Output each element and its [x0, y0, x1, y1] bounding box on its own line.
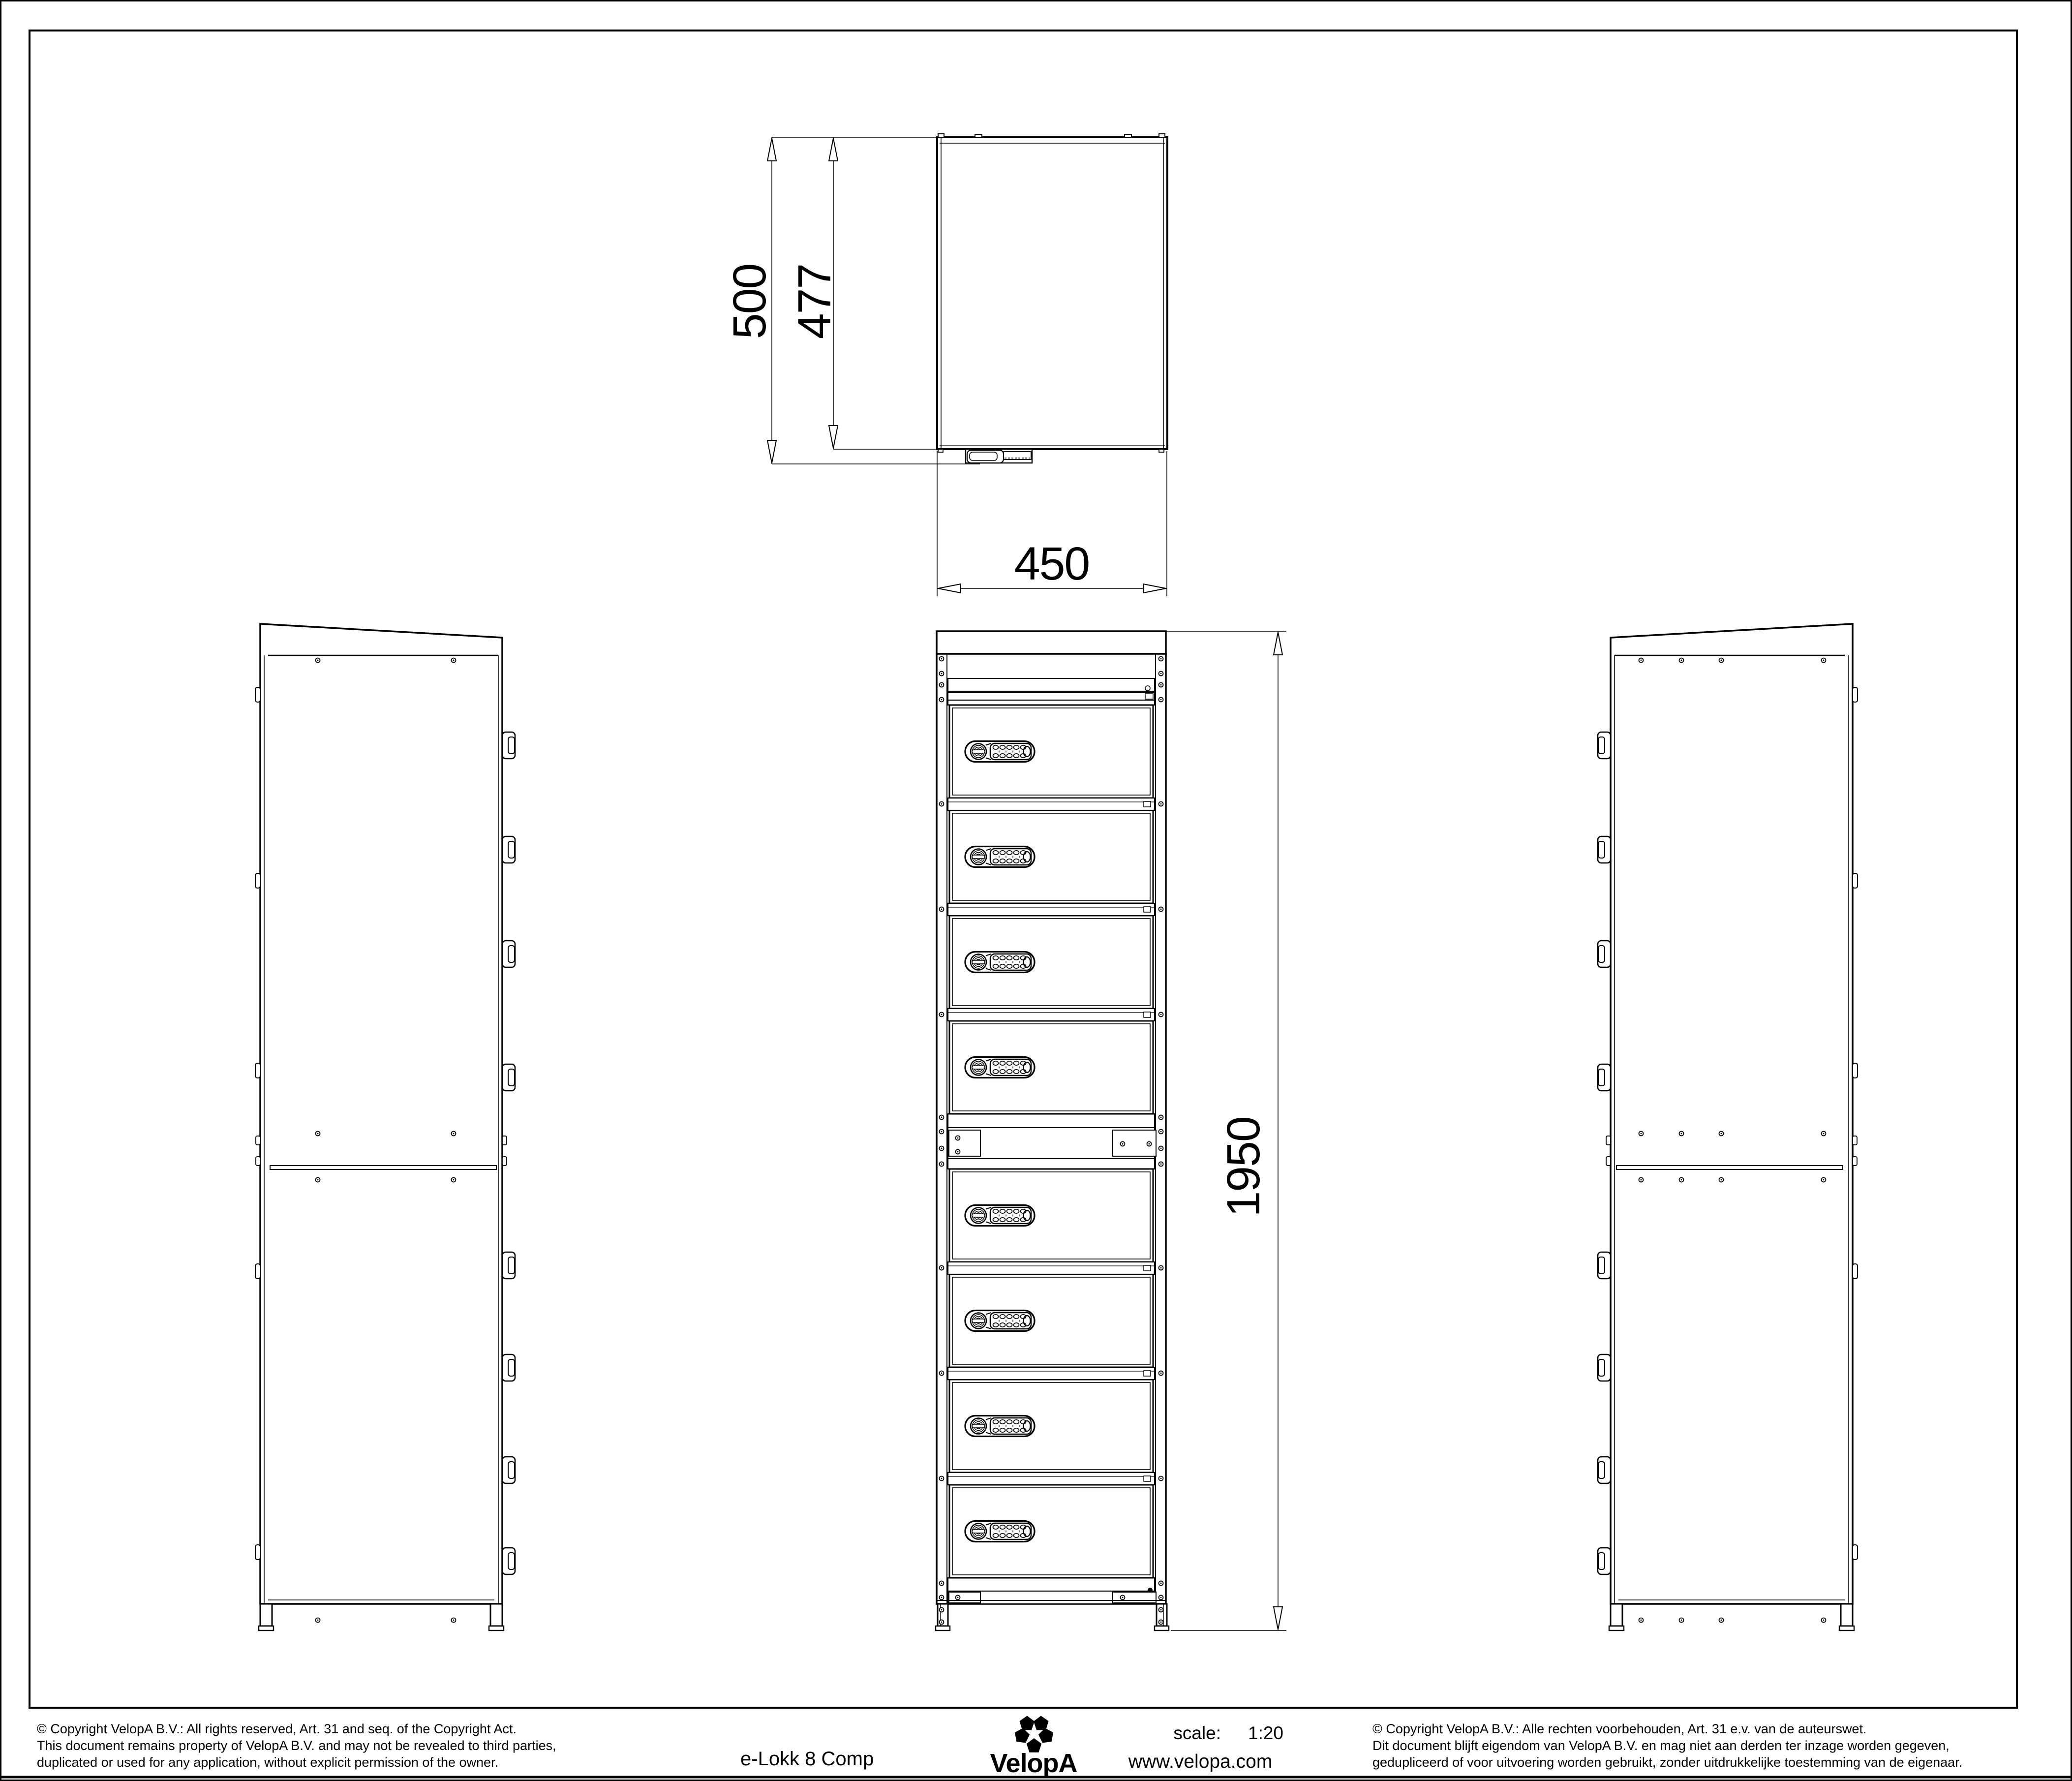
rivet-hole — [1160, 1014, 1162, 1015]
arrowhead-icon — [767, 440, 776, 463]
copyright-nl-line3: gedupliceerd of voor uitvoering worden g… — [1372, 1755, 1962, 1770]
rivet-hole — [1160, 1131, 1162, 1133]
side-view-left — [255, 624, 515, 1630]
hinge-nub — [1853, 1545, 1858, 1560]
front-junction-rail — [948, 1114, 1156, 1169]
rivet-hole — [941, 1609, 943, 1611]
rivet-hole — [1160, 1622, 1162, 1623]
rivet-hole — [1160, 1164, 1162, 1165]
front-top-slot — [948, 678, 1155, 705]
rivet-hole — [1721, 1620, 1722, 1621]
door-rail — [940, 903, 1163, 916]
rivet-hole — [941, 1478, 943, 1479]
rivet-hole — [453, 1179, 455, 1181]
side-view-right — [1598, 624, 1858, 1630]
rivet-hole — [957, 1597, 959, 1598]
logo-petal — [1020, 1716, 1035, 1730]
hinge-nub — [255, 1264, 260, 1279]
side-panel — [260, 624, 502, 1604]
copyright-en-line1: © Copyright VelopA B.V.: All rights rese… — [37, 1721, 517, 1736]
rivet-hole — [941, 1148, 943, 1149]
rivet-hole — [453, 660, 455, 661]
rivet-hole — [1681, 1620, 1682, 1621]
rivet-hole — [1160, 1583, 1162, 1584]
dimension-width-450: 450 — [937, 451, 1167, 596]
unit-seam — [1616, 1166, 1843, 1169]
key-slot — [972, 1424, 985, 1428]
keypad-lock-icon — [965, 1205, 1035, 1226]
hinge-nub — [255, 873, 260, 888]
rivet-hole — [1160, 803, 1162, 805]
rivet-hole — [1641, 1620, 1642, 1621]
hinge-nub — [255, 687, 260, 702]
hinge-mark — [1159, 134, 1165, 137]
joint-nub — [502, 1136, 507, 1145]
joint-nub — [1606, 1157, 1611, 1166]
hinge-nub — [1853, 873, 1858, 888]
side-foot-back — [1841, 1604, 1853, 1626]
drawing-title: e-Lokk 8 Comp — [740, 1748, 874, 1770]
rivet-hole — [1721, 660, 1722, 661]
joint-nub — [1606, 1136, 1611, 1145]
velopa-logo-icon — [1015, 1716, 1053, 1752]
side-foot-back — [259, 1626, 274, 1630]
dim-label-height: 1950 — [1218, 1117, 1270, 1217]
rivet-hole — [1160, 909, 1162, 910]
copyright-english: © Copyright VelopA B.V.: All rights rese… — [37, 1721, 556, 1770]
rivet-hole — [941, 699, 943, 701]
unit-seam — [270, 1166, 496, 1169]
joint-nub — [1853, 1157, 1857, 1166]
rivet-hole — [941, 803, 943, 805]
joint-nub — [256, 1157, 260, 1166]
logo-petal — [1038, 1728, 1053, 1743]
rivet-hole — [317, 1133, 319, 1135]
key-slot — [972, 960, 985, 964]
copyright-nl-line2: Dit document blijft eigendom van VelopA … — [1372, 1738, 1950, 1753]
arrowhead-icon — [767, 138, 776, 161]
rivet-hole — [1681, 1179, 1682, 1181]
front-bottom-rail — [937, 1578, 1166, 1604]
bolt-plate — [949, 1592, 980, 1603]
door-rail — [940, 1473, 1163, 1485]
hinge-nub — [255, 1545, 260, 1560]
rivet-hole — [317, 1620, 319, 1621]
rivet-hole — [1721, 1133, 1722, 1135]
rivet-hole — [941, 1117, 943, 1118]
rivet-hole — [941, 1131, 943, 1133]
hinge-nub — [1853, 687, 1858, 702]
dimension-height-1950: 1950 — [1166, 631, 1286, 1630]
rivet-hole — [1160, 658, 1162, 660]
hinge-nub — [1853, 1264, 1858, 1279]
rivet-hole — [317, 660, 319, 661]
key-slot — [972, 1319, 985, 1322]
copyright-nl-line1: © Copyright VelopA B.V.: Alle rechten vo… — [1372, 1721, 1867, 1736]
rivet-hole — [1160, 684, 1162, 686]
side-foot-back — [1839, 1626, 1854, 1630]
rivet-hole — [1160, 1117, 1162, 1118]
copyright-en-line2: This document remains property of VelopA… — [37, 1738, 556, 1753]
rivet-hole — [1122, 1597, 1124, 1598]
rivet-hole — [941, 658, 943, 660]
website-link[interactable]: www.velopa.com — [1128, 1751, 1273, 1772]
rivet-hole — [1681, 660, 1682, 661]
logo-petal — [1015, 1728, 1030, 1743]
rivet-hole — [941, 1014, 943, 1015]
side-foot-back — [260, 1604, 272, 1626]
keypad-lock-icon — [965, 952, 1035, 973]
rivet-hole — [1160, 699, 1162, 701]
rivet-hole — [1641, 660, 1642, 661]
rivet-hole — [1641, 1133, 1642, 1135]
rivet-hole — [1721, 1179, 1722, 1181]
rivet-hole — [1160, 673, 1162, 675]
rivet-hole — [941, 1373, 943, 1374]
rivet-hole — [1823, 1179, 1825, 1181]
key-slot — [972, 855, 985, 859]
drawing-sheet: 500 477 450 — [0, 0, 2072, 1781]
joint-nub — [1853, 1136, 1857, 1145]
side-foot-front — [490, 1604, 502, 1626]
joint-nub — [502, 1157, 507, 1166]
rivet-hole — [1160, 1373, 1162, 1374]
rivet-hole — [1823, 1133, 1825, 1135]
copyright-en-line3: duplicated or used for any application, … — [37, 1755, 498, 1770]
rivet-hole — [1681, 1133, 1682, 1135]
arrowhead-icon — [1274, 632, 1282, 655]
rivet-hole — [941, 1267, 943, 1269]
keypad-lock-icon — [965, 1311, 1035, 1331]
door-rail — [940, 1367, 1163, 1380]
top-view-latch — [966, 449, 1032, 463]
hinge-mark — [938, 134, 944, 137]
technical-drawing-canvas: 500 477 450 — [0, 0, 2072, 1781]
keypad-lock-icon — [965, 1057, 1035, 1078]
top-view-body — [937, 137, 1167, 449]
scale-value: 1:20 — [1248, 1723, 1283, 1743]
side-foot-front — [1611, 1604, 1622, 1626]
rivet-hole — [957, 1137, 959, 1139]
key-slot — [972, 750, 985, 753]
keypad-lock-icon — [965, 741, 1035, 762]
rivet-hole — [1160, 1148, 1162, 1149]
side-foot-front — [1609, 1626, 1624, 1630]
rivet-hole — [1160, 1597, 1162, 1598]
rivet-hole — [1149, 1143, 1150, 1145]
rivet-hole — [1823, 660, 1825, 661]
arrowhead-icon — [1274, 1607, 1282, 1629]
dim-label-depth-inner: 477 — [789, 264, 841, 339]
front-view: 1950 — [936, 631, 1286, 1630]
copyright-dutch: © Copyright VelopA B.V.: Alle rechten vo… — [1372, 1721, 1962, 1770]
top-view: 500 477 450 — [724, 134, 1167, 596]
scale-label: scale: — [1173, 1723, 1221, 1743]
door-rail — [940, 1262, 1163, 1274]
bolt-plate — [949, 1130, 980, 1156]
rivet-hole — [941, 1164, 943, 1165]
rivet-hole — [941, 909, 943, 910]
key-slot — [972, 1214, 985, 1217]
rivet-hole — [453, 1620, 455, 1621]
rivet-hole — [941, 684, 943, 686]
rivet-hole — [1160, 1609, 1162, 1611]
keypad-lock-icon — [965, 847, 1035, 867]
arrowhead-icon — [829, 138, 838, 161]
rivet-hole — [453, 1133, 455, 1135]
rivet-hole — [1122, 1143, 1124, 1145]
rivet-hole — [941, 1597, 943, 1598]
dim-label-width: 450 — [1014, 538, 1090, 590]
rivet-hole — [957, 1151, 959, 1153]
side-panel — [1611, 624, 1853, 1604]
keypad-lock-icon — [965, 1416, 1035, 1437]
key-slot — [972, 1066, 985, 1069]
brand-wordmark: VelopA — [990, 1749, 1077, 1778]
keypad-lock-icon — [965, 1521, 1035, 1542]
hinge-mark — [975, 134, 982, 137]
front-roof-band — [937, 631, 1166, 654]
title-block: © Copyright VelopA B.V.: All rights rese… — [37, 1716, 1962, 1779]
door-rail — [940, 798, 1163, 810]
rivet-hole — [317, 1179, 319, 1181]
hinge-nub — [1853, 1063, 1858, 1078]
rivet-hole — [941, 1583, 943, 1584]
side-foot-front — [489, 1626, 504, 1630]
arrowhead-icon — [938, 584, 961, 593]
dim-label-depth: 500 — [724, 264, 776, 339]
hinge-nub — [255, 1063, 260, 1078]
dimension-depth-477: 477 — [789, 137, 937, 449]
rivet-hole — [1160, 1267, 1162, 1269]
logo-petal — [1034, 1716, 1049, 1730]
rivet-hole — [1641, 1179, 1642, 1181]
rivet-hole — [1823, 1620, 1825, 1621]
rivet-hole — [941, 1622, 943, 1623]
hinge-mark — [1125, 134, 1131, 137]
joint-nub — [256, 1136, 260, 1145]
door-rail — [940, 1009, 1163, 1021]
key-slot — [972, 1530, 985, 1533]
rivet-hole — [941, 673, 943, 675]
arrowhead-icon — [1143, 584, 1166, 593]
bolt-plate — [1113, 1592, 1156, 1603]
rivet-hole — [1160, 1478, 1162, 1479]
arrowhead-icon — [829, 426, 838, 448]
